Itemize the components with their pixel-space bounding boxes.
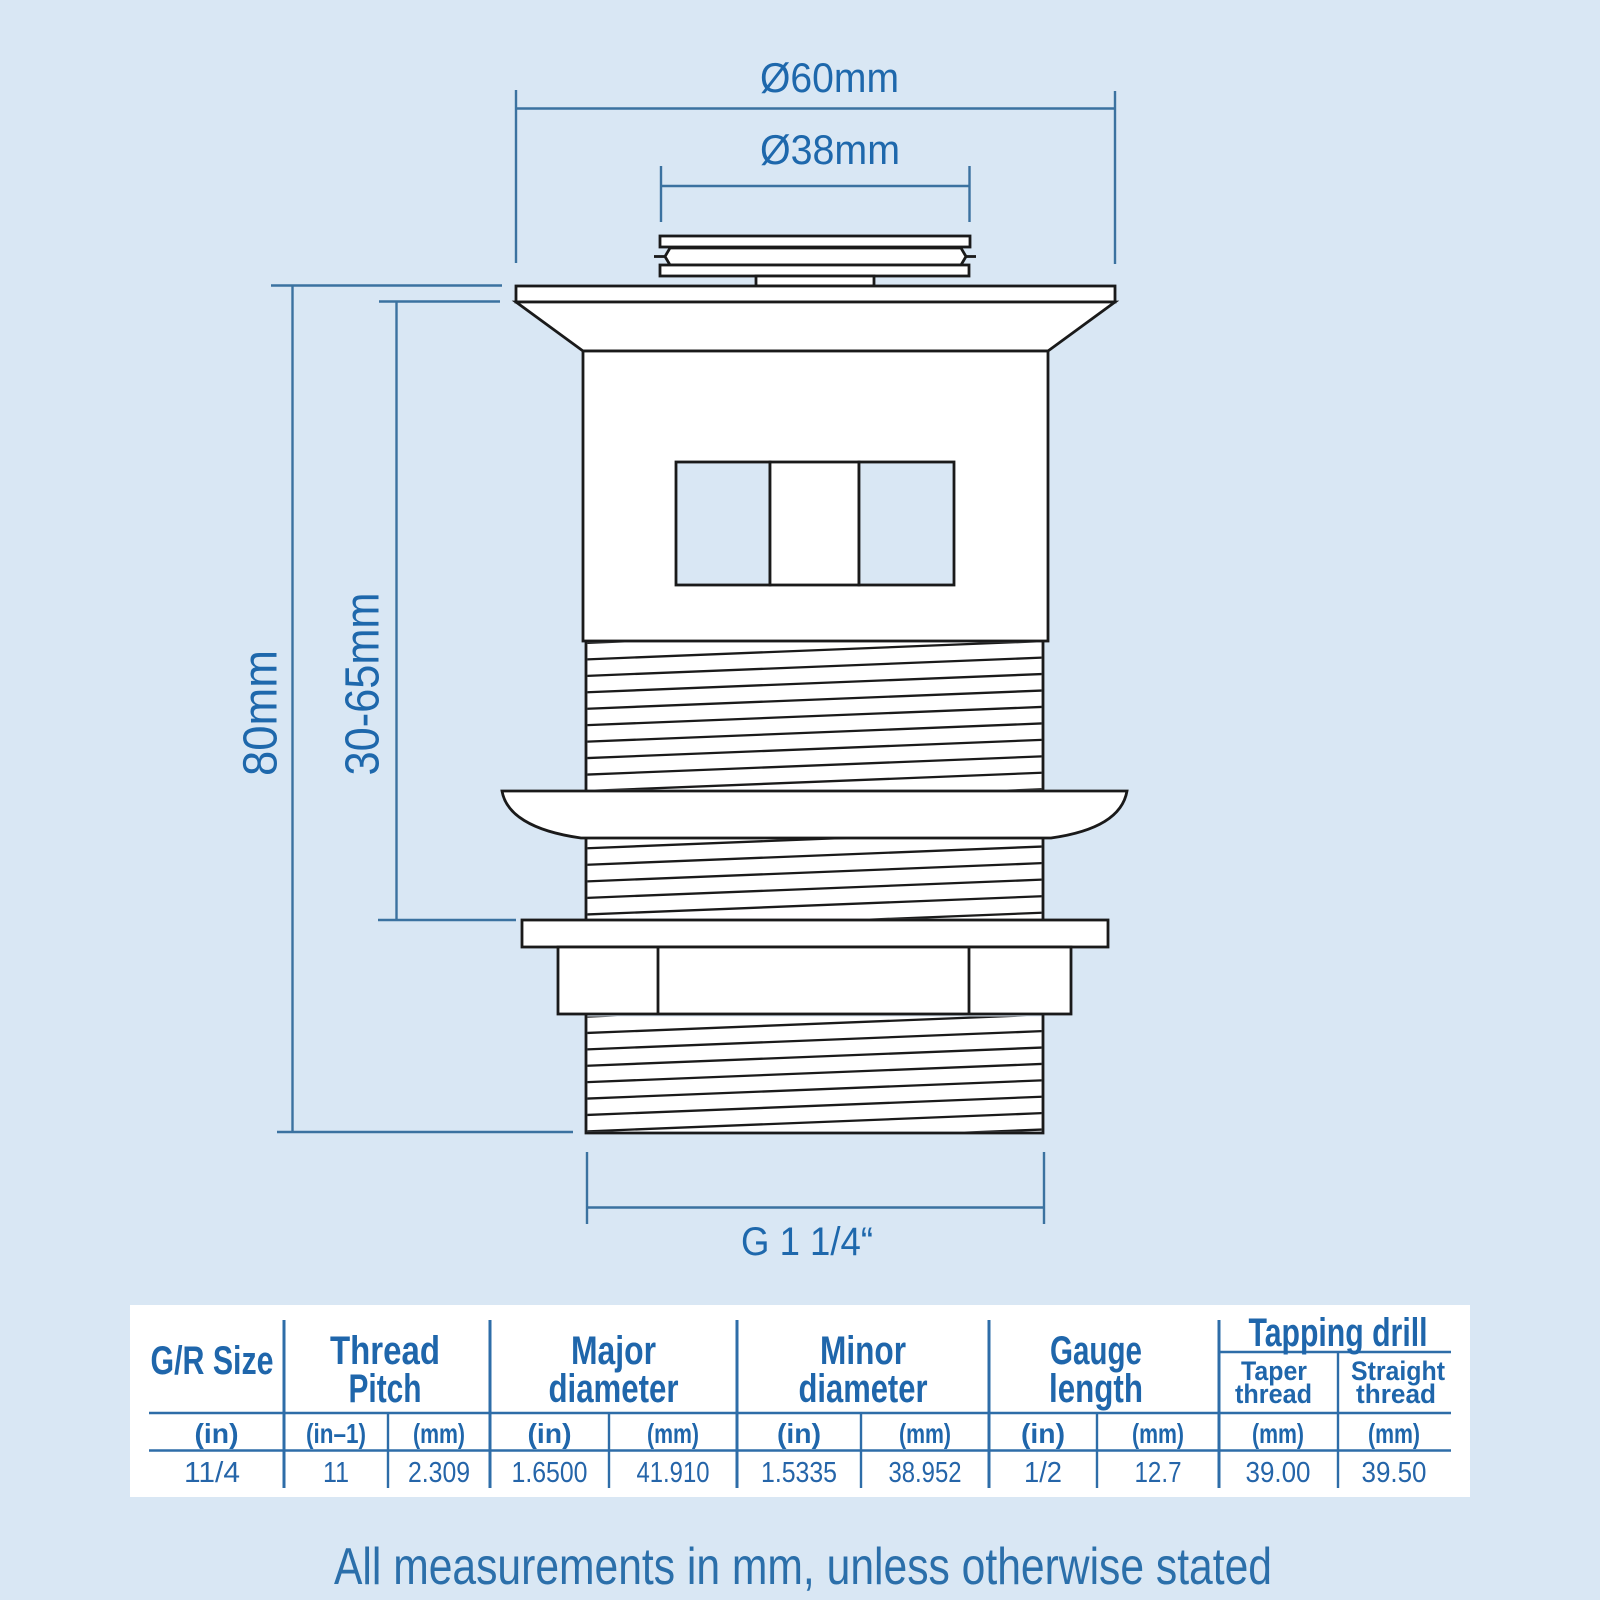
svg-text:thread: thread xyxy=(1235,1379,1312,1409)
svg-text:38.952: 38.952 xyxy=(889,1457,962,1489)
svg-text:(in–1): (in–1) xyxy=(306,1418,366,1449)
svg-text:(mm): (mm) xyxy=(1252,1418,1304,1449)
svg-text:All measurements in mm, unless: All measurements in mm, unless otherwise… xyxy=(334,1538,1272,1596)
svg-text:1/2: 1/2 xyxy=(1024,1457,1062,1489)
svg-text:(in): (in) xyxy=(195,1418,239,1449)
svg-text:Ø38mm: Ø38mm xyxy=(760,126,900,173)
svg-text:1.6500: 1.6500 xyxy=(512,1457,588,1489)
svg-text:G/R Size: G/R Size xyxy=(151,1339,274,1383)
svg-text:length: length xyxy=(1049,1367,1143,1411)
svg-text:(mm): (mm) xyxy=(413,1418,465,1449)
svg-text:2.309: 2.309 xyxy=(408,1457,470,1489)
svg-text:41.910: 41.910 xyxy=(637,1457,710,1489)
svg-text:diameter: diameter xyxy=(799,1367,928,1411)
svg-text:thread: thread xyxy=(1356,1379,1436,1409)
svg-text:30-65mm: 30-65mm xyxy=(337,593,390,776)
svg-text:11/4: 11/4 xyxy=(184,1457,240,1489)
svg-text:(mm): (mm) xyxy=(647,1418,699,1449)
svg-text:(mm): (mm) xyxy=(1368,1418,1420,1449)
svg-text:39.00: 39.00 xyxy=(1246,1457,1311,1489)
svg-text:Ø60mm: Ø60mm xyxy=(760,54,899,101)
svg-text:diameter: diameter xyxy=(549,1367,679,1411)
svg-text:Tapping drill: Tapping drill xyxy=(1249,1311,1428,1355)
svg-text:(in): (in) xyxy=(1021,1418,1065,1449)
svg-text:(in): (in) xyxy=(528,1418,572,1449)
svg-text:(mm): (mm) xyxy=(899,1418,951,1449)
svg-text:39.50: 39.50 xyxy=(1362,1457,1427,1489)
svg-text:G 1 1/4“: G 1 1/4“ xyxy=(741,1220,873,1264)
svg-text:12.7: 12.7 xyxy=(1135,1457,1182,1489)
svg-text:(mm): (mm) xyxy=(1132,1418,1184,1449)
svg-text:Pitch: Pitch xyxy=(349,1367,422,1411)
svg-text:1.5335: 1.5335 xyxy=(761,1457,837,1489)
svg-text:11: 11 xyxy=(323,1457,349,1489)
svg-text:(in): (in) xyxy=(777,1418,821,1449)
svg-text:80mm: 80mm xyxy=(235,650,288,776)
